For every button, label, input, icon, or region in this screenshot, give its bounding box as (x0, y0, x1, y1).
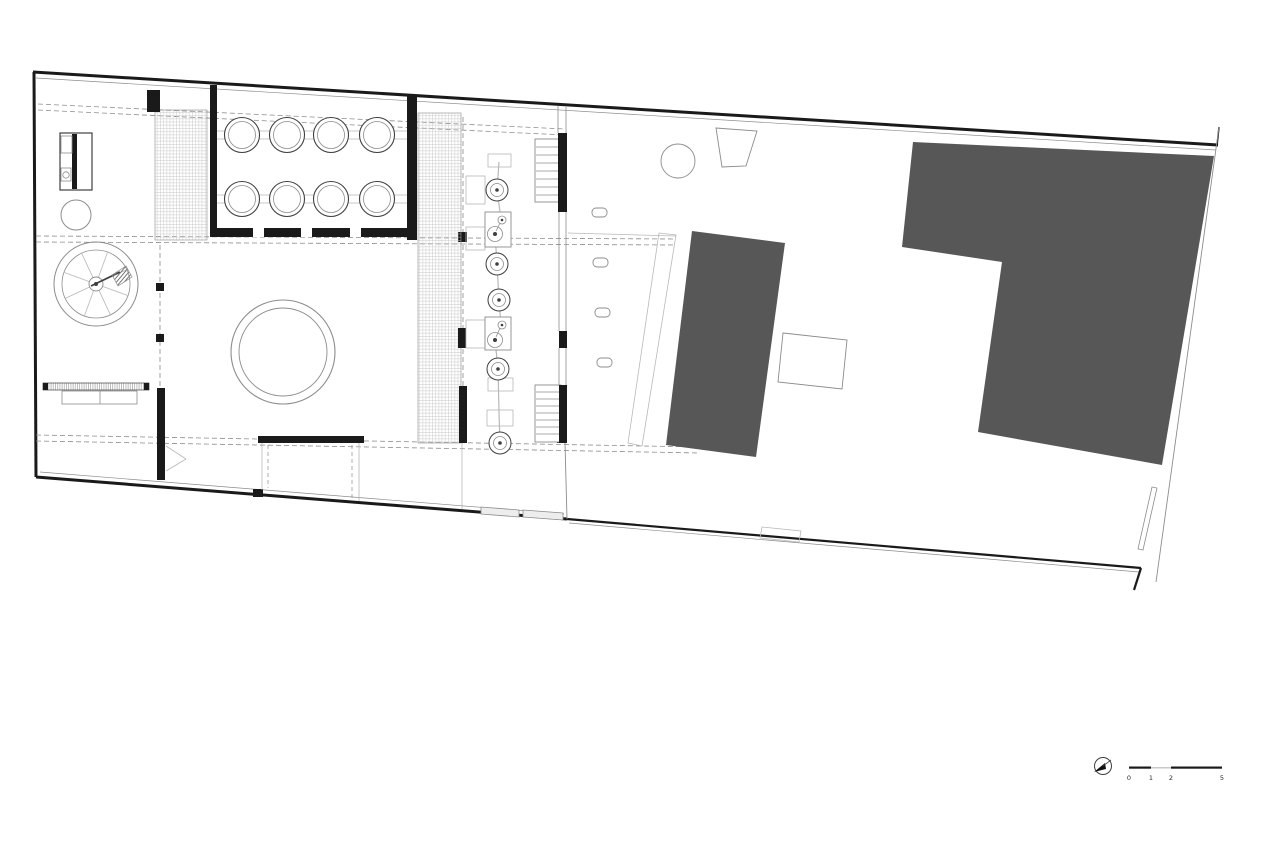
entry-room-shape (72, 134, 77, 189)
wall-segment (210, 228, 417, 237)
east-wall (558, 106, 567, 519)
tank-room-shape (301, 228, 312, 237)
grid-lines-shape (36, 242, 676, 245)
brewhouse-equipment-shape (496, 367, 500, 371)
door-swing (166, 446, 186, 459)
wall-segment (407, 95, 417, 240)
scale-label-0: 0 (1127, 774, 1131, 782)
brewhouse-equipment-shape (487, 410, 513, 426)
tree-ring (231, 300, 335, 404)
stairs (535, 139, 561, 442)
tank-room (210, 85, 417, 240)
site-boundary-shape (567, 519, 1141, 568)
garden-table (661, 144, 695, 178)
tank (270, 118, 305, 153)
brewhouse-equipment-shape (497, 298, 501, 302)
storage-room-shape (43, 383, 48, 390)
east-wall-shape (565, 443, 567, 519)
wall-light (593, 258, 608, 267)
terrace-outline (778, 333, 847, 389)
wall-light (595, 308, 610, 317)
wall-segment (458, 328, 466, 348)
tank (270, 182, 305, 217)
column-marker (156, 283, 164, 291)
north-arrow (1094, 758, 1112, 775)
planter (481, 507, 519, 517)
brewhouse-equipment-shape (466, 176, 485, 204)
tank (314, 182, 349, 217)
stair-flight (535, 139, 561, 202)
column-marker (156, 334, 164, 342)
site-boundary-shape (1134, 568, 1141, 590)
tank-room-shape (253, 228, 264, 237)
wall-segment (210, 85, 217, 237)
spiral-staircase-shape (99, 290, 110, 315)
door-swing (166, 459, 186, 471)
brewhouse-equipment (466, 154, 513, 454)
brewhouse-equipment-shape (501, 219, 504, 222)
wall-segment (157, 388, 165, 480)
scale-segment-light (1151, 767, 1171, 768)
site-boundary-shape (569, 523, 1139, 572)
ramp-edge (628, 233, 676, 446)
brewhouse-equipment-shape (495, 262, 499, 266)
roof-volumes (666, 142, 1214, 465)
site-boundary-shape (34, 72, 36, 477)
courtyard-tree (231, 300, 335, 404)
scale-segment-dark (1171, 767, 1222, 769)
column-marker (253, 489, 263, 497)
window-band (43, 383, 149, 390)
brewhouse-equipment-shape (466, 320, 485, 348)
planter (523, 510, 563, 520)
spiral-staircase-shape (112, 266, 132, 286)
brewhouse-equipment-shape (495, 188, 499, 192)
tank (360, 182, 395, 217)
grid-lines-shape (36, 435, 700, 447)
wall-segment (559, 385, 567, 443)
spiral-staircase-shape (98, 252, 107, 277)
scale-segment-dark (1129, 767, 1151, 769)
hatched-zone (418, 113, 461, 443)
brewhouse-equipment-shape (488, 154, 511, 167)
scale-label-2: 2 (1169, 774, 1173, 782)
roof-volume-small (666, 231, 785, 457)
scale-label-1: 1 (1149, 774, 1153, 782)
entry-room (60, 90, 160, 230)
stair-flight (535, 385, 561, 442)
spiral-staircase-shape (84, 291, 93, 316)
spiral-staircase-shape (82, 253, 93, 278)
brewhouse-equipment-shape (501, 324, 504, 327)
brewhouse-equipment-shape (493, 232, 497, 236)
spiral-staircase-shape (64, 272, 89, 281)
wall-segment (559, 331, 567, 348)
storage-room-shape (144, 383, 149, 390)
brewhouse-equipment-shape (493, 338, 497, 342)
spiral-staircase-shape (103, 286, 128, 295)
brewhouse-equipment-shape (498, 441, 502, 445)
roof-volume-large (902, 142, 1214, 465)
floor-plan-svg: 0125 (0, 0, 1280, 853)
tank-room-shape (350, 228, 361, 237)
round-table (61, 200, 91, 230)
tank (225, 118, 260, 153)
storage-room (43, 383, 186, 480)
bench (62, 391, 137, 404)
courtyard-tree-shape (239, 308, 327, 396)
brewhouse-equipment-shape (466, 227, 485, 250)
wall-light (592, 208, 607, 217)
wall-segment (558, 133, 567, 212)
wall-segment (459, 386, 467, 443)
wall-light (597, 358, 612, 367)
floor-plan: 0125 (0, 0, 1280, 853)
tank (225, 182, 260, 217)
scale-bar: 0125 (1127, 767, 1224, 783)
tank (314, 118, 349, 153)
hatched-zone (155, 110, 207, 240)
wall-segment (258, 436, 364, 443)
spiral-staircase-shape (65, 287, 90, 298)
tank (360, 118, 395, 153)
gate-leaf (1138, 487, 1157, 550)
planters (481, 507, 563, 520)
wall-stub (147, 90, 160, 112)
grid-lines (36, 104, 700, 497)
scale-label-5: 5 (1220, 774, 1224, 782)
spiral-staircase (54, 242, 138, 326)
hatch-bands (155, 110, 467, 443)
garden-bed (716, 128, 757, 167)
grid-lines-shape (36, 441, 700, 453)
